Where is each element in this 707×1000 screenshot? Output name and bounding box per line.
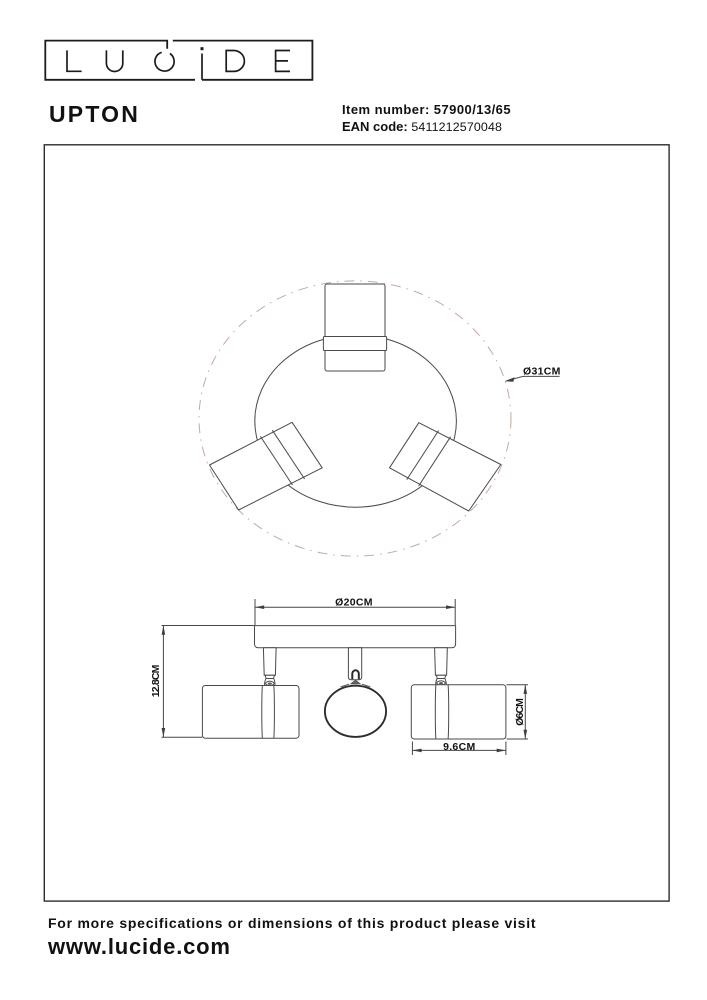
svg-text:Ø20CM: Ø20CM (335, 597, 373, 609)
svg-text:Ø6CM: Ø6CM (514, 698, 526, 726)
svg-text:9.6CM: 9.6CM (443, 741, 475, 753)
svg-text:12.8CM: 12.8CM (150, 664, 162, 697)
svg-text:Ø31CM: Ø31CM (523, 366, 561, 378)
